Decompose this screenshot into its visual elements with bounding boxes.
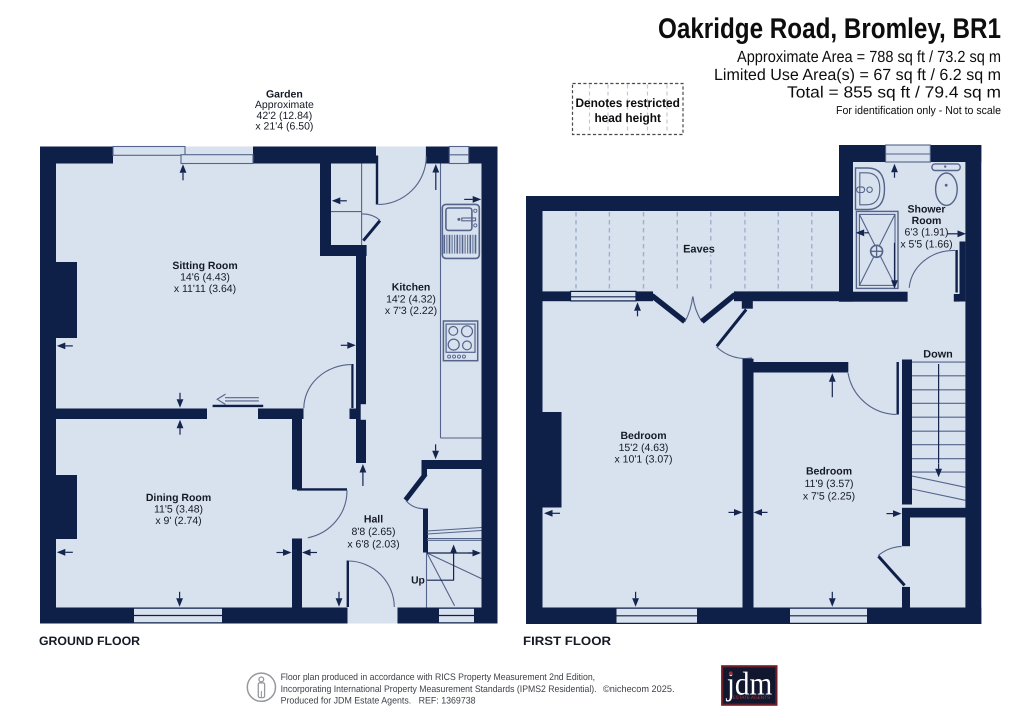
svg-text:Incorporating International Pr: Incorporating International Property Mea… (281, 684, 597, 695)
svg-text:14'2 (4.32): 14'2 (4.32) (386, 293, 436, 305)
svg-text:x 6'8 (2.03): x 6'8 (2.03) (347, 538, 399, 550)
svg-text:Down: Down (923, 348, 952, 360)
svg-text:Eaves: Eaves (683, 243, 715, 255)
svg-text:x 7'3 (2.22): x 7'3 (2.22) (385, 305, 437, 317)
svg-text:x 10'1 (3.07): x 10'1 (3.07) (614, 454, 672, 466)
svg-text:Denotes restricted: Denotes restricted (575, 96, 680, 110)
svg-text:6'3 (1.91): 6'3 (1.91) (904, 227, 948, 239)
svg-text:x 7'5 (2.25): x 7'5 (2.25) (803, 491, 855, 503)
svg-text:ESTATE AGENTS: ESTATE AGENTS (733, 695, 771, 701)
svg-text:x 9' (2.74): x 9' (2.74) (155, 515, 201, 527)
svg-text:8'8 (2.65): 8'8 (2.65) (351, 526, 395, 538)
svg-text:Up: Up (411, 576, 425, 587)
svg-text:Oakridge Road, Bromley, BR1: Oakridge Road, Bromley, BR1 (658, 13, 1001, 45)
svg-text:FIRST FLOOR: FIRST FLOOR (523, 634, 611, 648)
svg-text:Bedroom: Bedroom (620, 430, 666, 442)
svg-text:Limited Use Area(s) = 67 sq ft: Limited Use Area(s) = 67 sq ft / 6.2 sq … (714, 66, 1001, 84)
svg-text:Total = 855 sq ft / 79.4 sq m: Total = 855 sq ft / 79.4 sq m (787, 83, 1001, 101)
svg-text:11'9 (3.57): 11'9 (3.57) (804, 478, 853, 490)
svg-text:x 21'4 (6.50): x 21'4 (6.50) (255, 121, 313, 133)
svg-text:Dining Room: Dining Room (146, 492, 211, 504)
svg-text:Room: Room (912, 215, 942, 227)
svg-text:14'6 (4.43): 14'6 (4.43) (180, 272, 230, 284)
svg-text:Bedroom: Bedroom (806, 466, 852, 478)
svg-text:x 11'11 (3.64): x 11'11 (3.64) (174, 283, 236, 295)
svg-text:For identification only - Not: For identification only - Not to scale (836, 105, 1001, 117)
svg-text:GROUND FLOOR: GROUND FLOOR (39, 634, 140, 648)
svg-text:head height: head height (594, 111, 661, 125)
svg-text:15'2 (4.63): 15'2 (4.63) (619, 442, 669, 454)
svg-text:Produced for JDM Estate Agents: Produced for JDM Estate Agents. REF: 136… (281, 696, 476, 707)
svg-text:Approximate Area = 788 sq ft /: Approximate Area = 788 sq ft / 73.2 sq m (737, 48, 1001, 66)
svg-text:Kitchen: Kitchen (392, 282, 431, 294)
svg-text:Floor plan produced in accorda: Floor plan produced in accordance with R… (281, 672, 595, 683)
svg-text:x 5'5 (1.66): x 5'5 (1.66) (900, 238, 952, 250)
svg-text:11'5 (3.48): 11'5 (3.48) (154, 504, 203, 516)
svg-text:©nichecom 2025.: ©nichecom 2025. (603, 684, 675, 695)
svg-text:Shower: Shower (908, 204, 946, 216)
svg-text:Hall: Hall (364, 514, 383, 526)
svg-text:Sitting Room: Sitting Room (172, 260, 237, 272)
